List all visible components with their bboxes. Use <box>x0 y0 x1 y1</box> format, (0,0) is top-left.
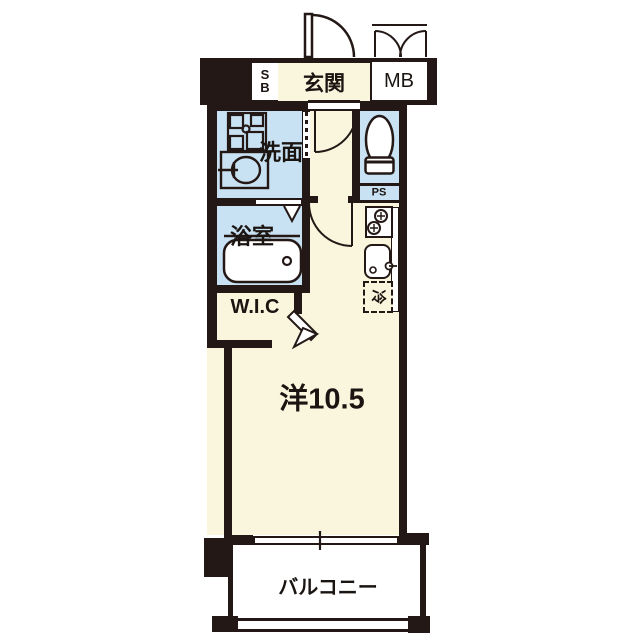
entrance-label: 玄関 <box>303 74 345 95</box>
wall-room-left <box>224 348 232 538</box>
washroom-door-dotted <box>303 112 310 158</box>
shoe-box-line2: B <box>260 81 269 94</box>
ps-border-bottom <box>352 200 407 203</box>
pillar-sw <box>204 538 235 577</box>
entrance-door-icon <box>305 14 354 57</box>
bathroom-door <box>255 199 302 205</box>
refrigerator-label: 冷 <box>371 289 386 304</box>
bathroom-label: 浴室 <box>230 226 274 248</box>
meter-box-doors-icon <box>372 25 427 57</box>
balcony-left-edge <box>228 577 233 620</box>
wall-door-stub-left <box>302 196 318 203</box>
wall-bath-bottom <box>207 285 302 293</box>
wall-wic-bottom <box>207 340 272 348</box>
main-room-label: 洋10.5 <box>279 386 364 415</box>
shoe-box-label: S B <box>260 68 269 94</box>
meter-box-label: MB <box>384 71 414 91</box>
balcony-railing <box>234 618 414 632</box>
balcony-window <box>253 536 399 545</box>
railing-end-right <box>408 616 430 633</box>
wall-left-outer <box>207 105 217 348</box>
wall-wic-right <box>294 285 302 314</box>
pillar-se <box>399 533 429 545</box>
wall-washroom-top <box>207 105 308 111</box>
floorplan: S B 玄関 MB 洗面 PS 浴室 W.I.C 洋10.5 バルコニー 冷 <box>0 0 640 640</box>
balcony-right-edge <box>420 545 426 618</box>
closet-label: W.I.C <box>231 297 280 317</box>
wall-bottom-stub <box>232 535 253 545</box>
washroom-label: 洗面 <box>259 142 303 164</box>
pipe-space-label: PS <box>372 188 387 199</box>
entrance-step <box>308 100 360 111</box>
wall-hall-right <box>352 105 360 203</box>
wall-right-outer <box>399 105 407 533</box>
toilet-floor <box>360 111 399 183</box>
railing-end-left <box>212 616 238 632</box>
balcony-label: バルコニー <box>278 578 378 598</box>
